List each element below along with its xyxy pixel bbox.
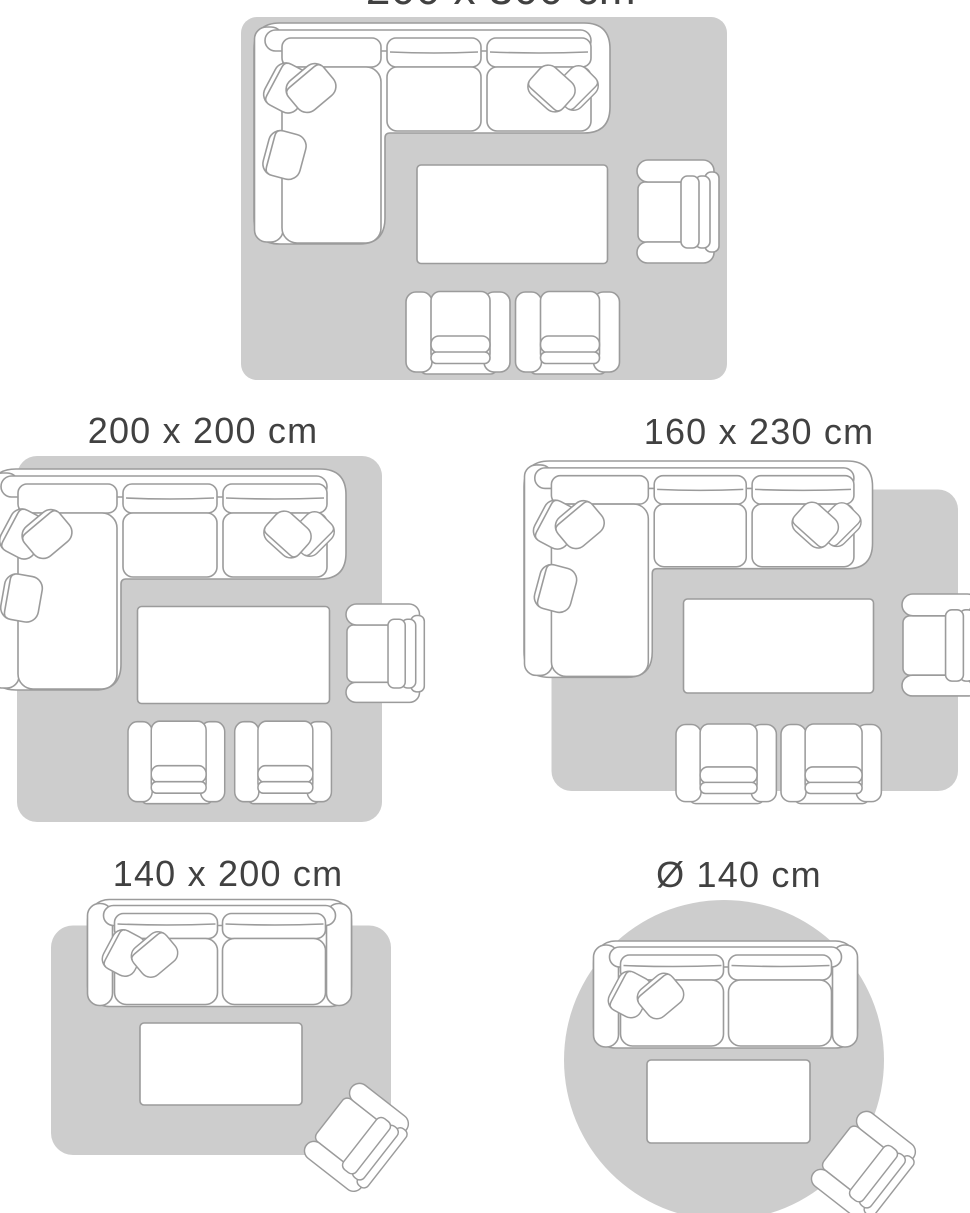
svg-text:160 x 230 cm: 160 x 230 cm [644,411,875,452]
svg-text:140 x 200 cm: 140 x 200 cm [113,853,344,894]
svg-text:Ø 140 cm: Ø 140 cm [656,854,822,895]
svg-text:200 x 200 cm: 200 x 200 cm [88,410,319,451]
svg-text:200 x 300 cm: 200 x 300 cm [366,0,636,14]
